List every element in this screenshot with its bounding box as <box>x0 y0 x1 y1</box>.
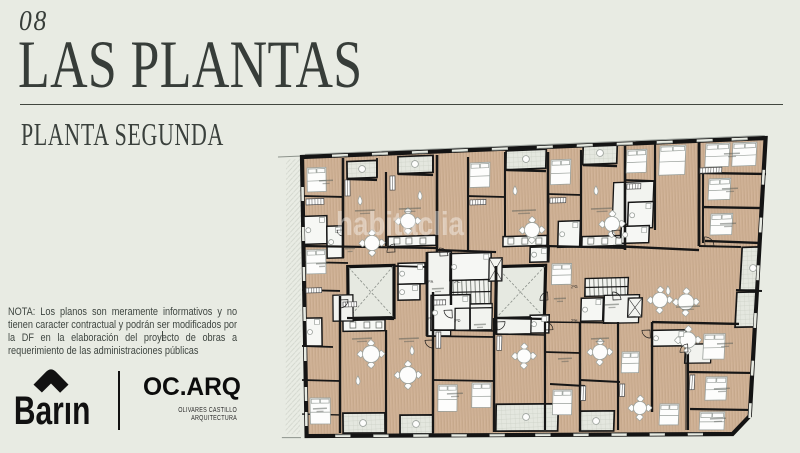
svg-text:habitaclia: habitaclia <box>336 205 465 242</box>
svg-text:Barın: Barın <box>14 389 91 430</box>
svg-text:2ºB: 2ºB <box>427 316 434 321</box>
svg-text:2ºH: 2ºH <box>571 318 578 323</box>
svg-text:2ºG: 2ºG <box>571 284 578 289</box>
svg-text:2ºD: 2ºD <box>454 318 461 323</box>
svg-text:2ºA: 2ºA <box>427 279 434 284</box>
svg-text:2ºC: 2ºC <box>454 279 461 284</box>
